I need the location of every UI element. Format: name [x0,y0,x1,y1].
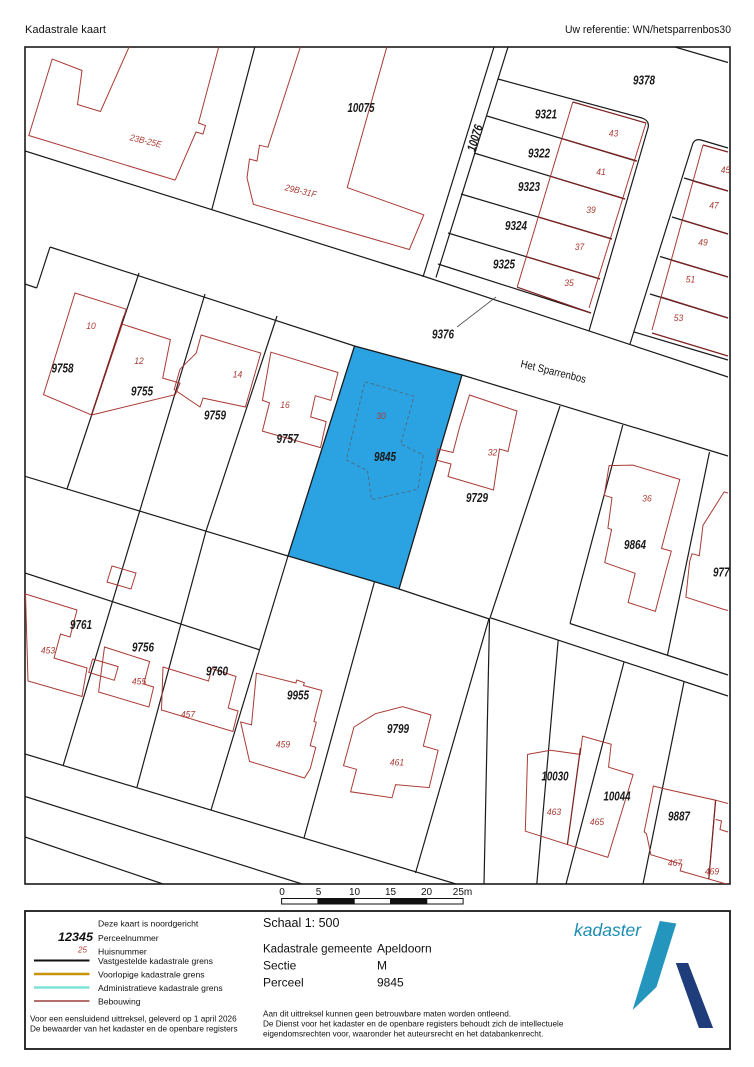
svg-text:Perceelnummer: Perceelnummer [98,933,159,943]
svg-text:Voorlopige kadastrale grens: Voorlopige kadastrale grens [98,970,205,980]
svg-text:5: 5 [316,887,322,898]
svg-text:37: 37 [575,242,585,252]
svg-text:Huisnummer: Huisnummer [98,947,147,957]
svg-text:9756: 9756 [132,641,155,655]
svg-text:20: 20 [421,887,433,898]
svg-text:9322: 9322 [528,147,550,161]
svg-text:9323: 9323 [518,180,540,194]
svg-text:9755: 9755 [131,385,154,399]
svg-text:39: 39 [586,205,596,215]
svg-text:9799: 9799 [387,722,409,736]
svg-text:De bewaarder van het kadaster: De bewaarder van het kadaster en de open… [30,1025,238,1034]
svg-text:16: 16 [280,400,290,410]
svg-text:10044: 10044 [604,790,631,804]
svg-text:14: 14 [233,370,243,380]
svg-text:457: 457 [181,710,196,720]
svg-text:9729: 9729 [466,491,488,505]
svg-text:30: 30 [376,411,386,421]
svg-text:10: 10 [349,887,361,898]
svg-text:Uw referentie: WN/hetsparrenbo: Uw referentie: WN/hetsparrenbos30 [565,24,731,36]
svg-text:9759: 9759 [204,409,226,423]
svg-text:eigendomsrechten voor, waarond: eigendomsrechten voor, waaronder het aut… [263,1030,543,1039]
svg-text:35: 35 [564,278,574,288]
svg-text:9325: 9325 [493,258,516,272]
svg-text:465: 465 [590,817,605,827]
svg-text:43: 43 [609,129,619,139]
svg-text:53: 53 [674,313,684,323]
svg-text:32: 32 [488,448,498,458]
svg-text:453: 453 [41,646,55,656]
svg-text:461: 461 [390,758,404,768]
svg-text:Schaal 1: 500: Schaal 1: 500 [263,916,339,930]
svg-text:Sectie: Sectie [263,959,297,973]
svg-text:Aan dit uittreksel kunnen geen: Aan dit uittreksel kunnen geen betrouwba… [263,1010,511,1019]
svg-text:M: M [377,959,387,973]
svg-text:41: 41 [596,167,606,177]
svg-text:Kadastrale gemeente: Kadastrale gemeente [263,944,372,956]
svg-text:9321: 9321 [535,108,557,122]
svg-text:455: 455 [132,677,147,687]
svg-text:kadaster: kadaster [574,920,642,940]
svg-text:Apeldoorn: Apeldoorn [377,942,432,956]
svg-text:9378: 9378 [633,74,655,88]
svg-text:10030: 10030 [542,770,569,784]
svg-text:47: 47 [709,201,719,211]
svg-text:36: 36 [642,494,652,504]
svg-text:Administratieve kadastrale gre: Administratieve kadastrale grens [98,983,223,993]
svg-text:459: 459 [276,740,290,750]
svg-text:Vastgestelde kadastrale grens: Vastgestelde kadastrale grens [98,956,213,966]
svg-text:Deze kaart is noordgericht: Deze kaart is noordgericht [98,919,199,929]
svg-text:9845: 9845 [374,450,397,464]
svg-text:9761: 9761 [70,618,92,632]
svg-text:10075: 10075 [348,101,376,115]
svg-text:Bebouwing: Bebouwing [98,997,141,1007]
svg-text:Perceel: Perceel [263,976,304,990]
svg-text:12345: 12345 [58,932,94,944]
svg-text:9955: 9955 [287,689,310,703]
svg-text:9845: 9845 [377,976,404,990]
svg-text:25: 25 [77,946,88,955]
svg-text:9758: 9758 [52,362,74,376]
svg-text:9324: 9324 [505,219,527,233]
svg-text:12: 12 [134,356,144,366]
svg-text:49: 49 [698,238,708,248]
svg-text:Kadastrale kaart: Kadastrale kaart [25,24,106,36]
svg-text:9376: 9376 [432,328,455,342]
svg-text:10: 10 [86,321,96,331]
svg-text:25m: 25m [453,887,472,898]
svg-text:De Dienst voor het kadaster en: De Dienst voor het kadaster en de openba… [263,1020,564,1029]
svg-text:9760: 9760 [206,665,228,679]
svg-text:51: 51 [686,275,696,285]
svg-text:15: 15 [385,887,397,898]
svg-text:45: 45 [721,165,731,175]
svg-text:463: 463 [547,807,561,817]
svg-text:9757: 9757 [277,432,300,446]
svg-text:Voor een eensluidend uittrekse: Voor een eensluidend uittreksel, gelever… [30,1015,237,1024]
svg-text:9887: 9887 [668,810,691,824]
svg-text:469: 469 [705,867,719,877]
svg-text:467: 467 [668,858,683,868]
svg-text:9864: 9864 [624,538,646,552]
svg-text:0: 0 [279,887,285,898]
